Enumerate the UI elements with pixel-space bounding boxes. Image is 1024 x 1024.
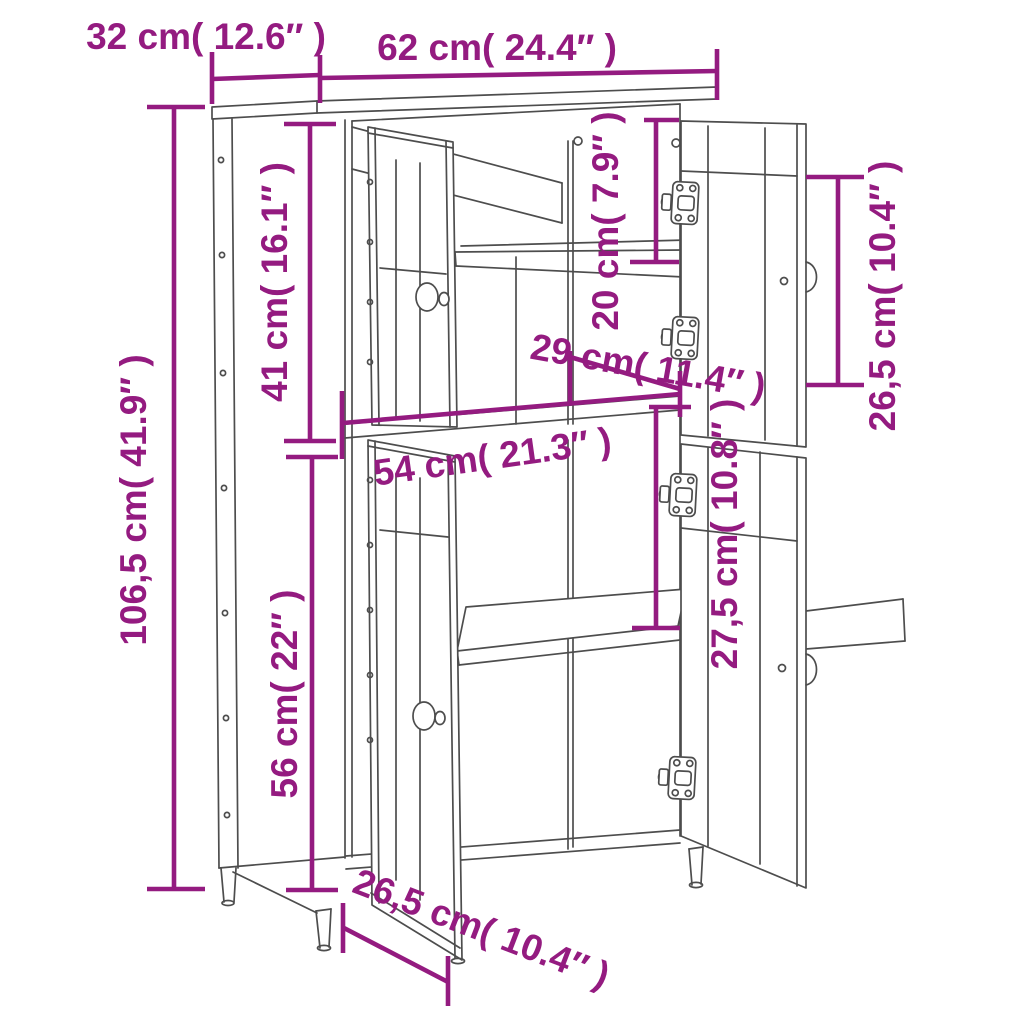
interior-back-hint: [806, 599, 905, 649]
dimension-total-height: 106,5 cm( 41.9″ ): [113, 107, 205, 889]
door-foot: [452, 958, 465, 963]
center-dividers: [516, 141, 573, 849]
dimension-diagram-page: 32 cm( 12.6″ ) 62 cm( 24.4″ ) 106,5 cm( …: [0, 0, 1024, 1024]
upper-shelf: [455, 240, 687, 277]
top-panel: [212, 87, 717, 119]
dim-label-lower-shelf-gap: 27,5 cm( 10.8″ ): [704, 399, 745, 670]
cam-lock: [574, 137, 582, 145]
dim-label-upper-shelf-gap: 20 cm( 7.9″ ): [585, 111, 626, 330]
dimension-lower-section-height: 56 cm( 22″ ): [264, 457, 338, 890]
dim-label-total-height: 106,5 cm( 41.9″ ): [113, 354, 154, 645]
dim-label-width-top: 62 cm( 24.4″ ): [377, 27, 617, 68]
dimension-upper-door-height: 26,5 cm( 10.4″ ): [806, 161, 903, 432]
dimension-upper-section-height: 41 cm( 16.1″ ): [254, 124, 336, 441]
dim-label-lower-section-height: 56 cm( 22″ ): [264, 590, 305, 799]
dimension-lower-door-width: 26,5 cm( 10.4″ ): [343, 861, 615, 1006]
dim-label-lower-door-width: 26,5 cm( 10.4″ ): [348, 861, 615, 996]
dim-label-depth-top: 32 cm( 12.6″ ): [86, 16, 326, 57]
hinge-icon: [660, 181, 699, 225]
door-top-left: [368, 127, 457, 427]
hinge-icon: [658, 473, 697, 517]
hinge-icon: [657, 756, 696, 800]
knob-top-right: [806, 262, 817, 292]
cabinet-dimension-diagram: 32 cm( 12.6″ ) 62 cm( 24.4″ ) 106,5 cm( …: [0, 0, 1024, 1024]
door-bottom-right: [681, 444, 817, 888]
shelf-pin-holes-left: [218, 157, 229, 817]
cabinet-line-art: [212, 87, 905, 964]
dim-label-inner-width: 54 cm( 21.3″ ): [371, 420, 614, 494]
dimension-depth-top: 32 cm( 12.6″ ): [86, 16, 326, 104]
knob-bottom-right: [806, 654, 817, 685]
cam-lock: [672, 139, 680, 147]
dimension-upper-shelf-gap: 20 cm( 7.9″ ): [585, 111, 679, 330]
dim-label-upper-door-height: 26,5 cm( 10.4″ ): [862, 161, 903, 432]
dim-label-upper-section-height: 41 cm( 16.1″ ): [254, 162, 295, 402]
